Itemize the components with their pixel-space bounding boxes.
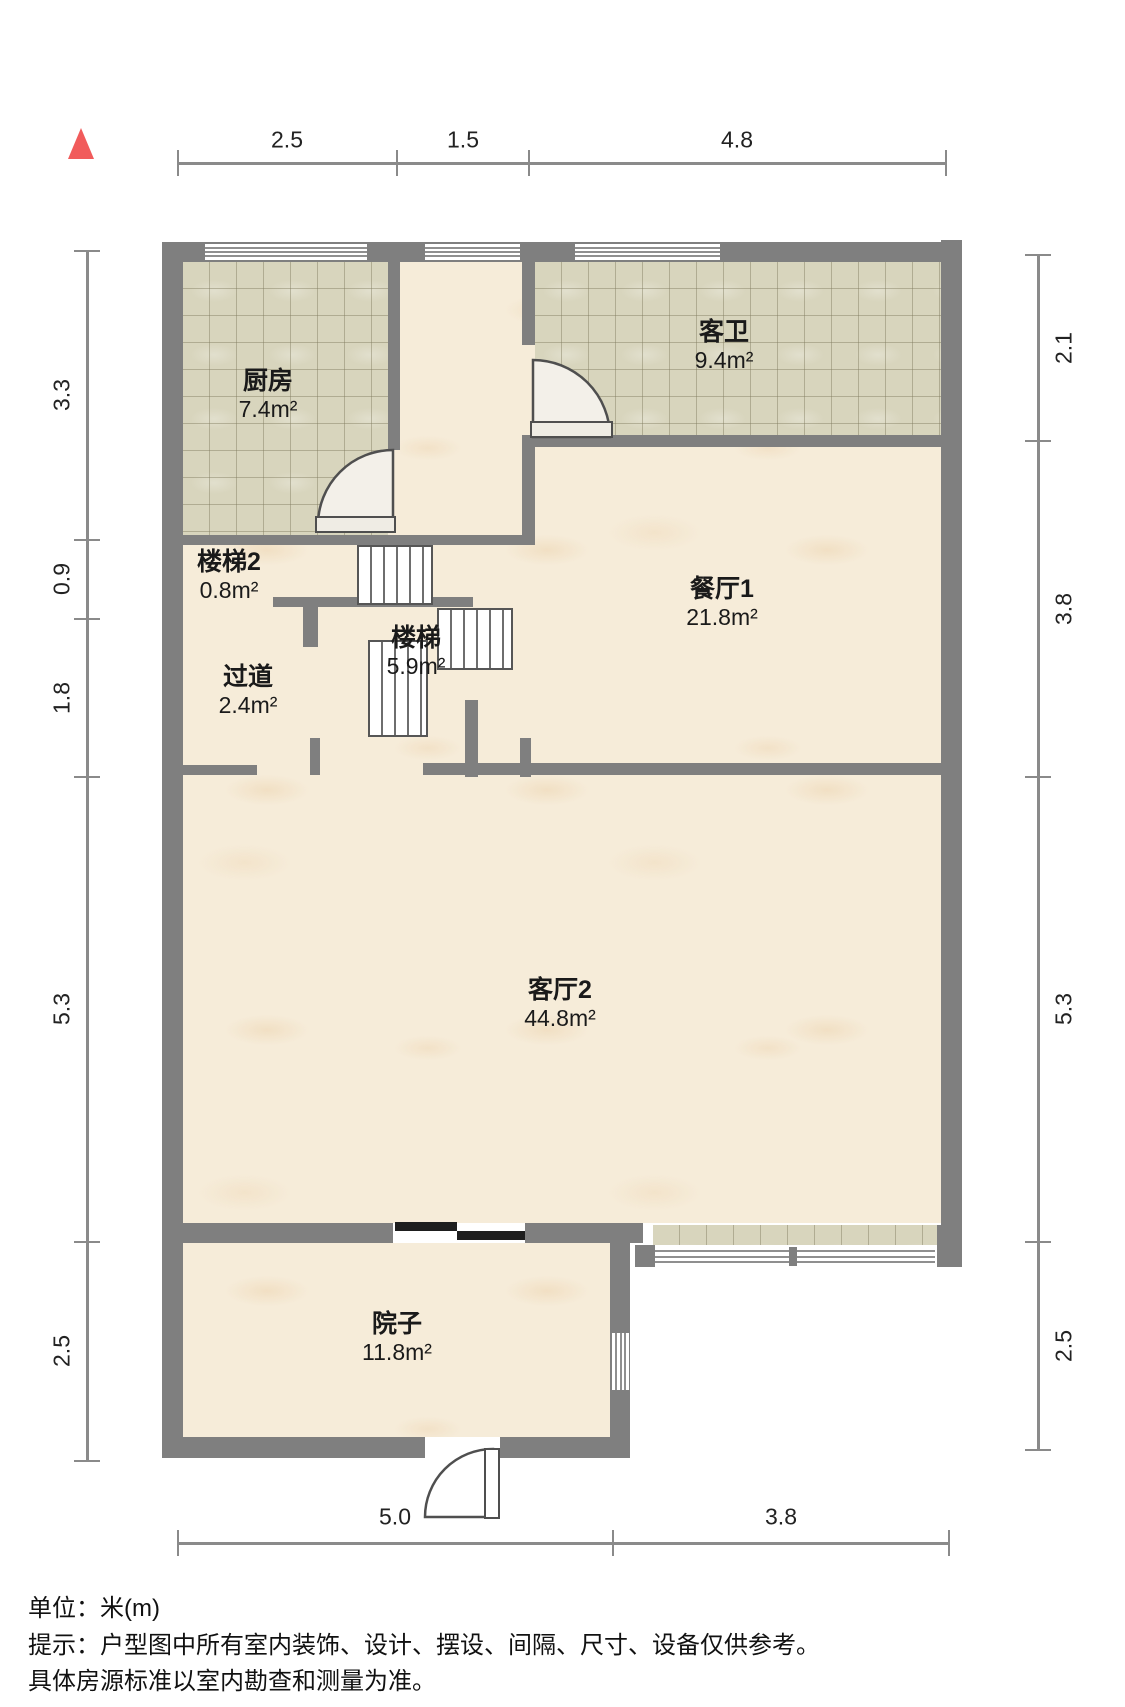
wall-corridor-right-lower xyxy=(522,447,535,545)
wall-window-cap-right xyxy=(937,1225,958,1267)
dim-tick xyxy=(74,1241,100,1243)
dim-right-3: 5.3 xyxy=(1051,993,1078,1025)
dim-top-3: 4.8 xyxy=(721,127,753,154)
stairs-upper-treads xyxy=(357,545,433,605)
window-living-bottom-mullion xyxy=(789,1247,797,1266)
room-label-hallway: 过道2.4m² xyxy=(219,663,278,719)
wall-window-cap-left xyxy=(635,1245,655,1267)
window-kitchen-top xyxy=(205,244,367,260)
footer-notice-line: 提示：户型图中所有室内装饰、设计、摆设、间隔、尺寸、设备仅供参考。 xyxy=(28,1625,820,1660)
footer-unit-line: 单位：米(m) xyxy=(28,1588,160,1623)
dim-tick xyxy=(612,1530,614,1556)
sliding-door-panel-right xyxy=(457,1231,525,1240)
dim-bottom-1: 5.0 xyxy=(379,1504,411,1531)
dim-tick xyxy=(948,1530,950,1556)
wall-stub-stair-b xyxy=(520,738,531,777)
room-label-stair-2: 楼梯20.8m² xyxy=(197,548,261,604)
stairs-right-treads xyxy=(437,608,513,670)
dim-tick xyxy=(528,150,530,176)
dim-tick xyxy=(177,1530,179,1556)
floor-plan: 厨房7.4m² 客卫9.4m² 楼梯20.8m² 餐厅121.8m² 楼梯5.9… xyxy=(0,0,1125,1707)
dim-line-top xyxy=(178,162,946,165)
entrance-door-leaf xyxy=(485,1449,499,1518)
dim-tick xyxy=(1025,440,1051,442)
wall-left xyxy=(162,242,183,1458)
dim-top-2: 1.5 xyxy=(447,127,479,154)
room-label-guest-bath: 客卫9.4m² xyxy=(695,318,754,374)
wall-hallway-bottom xyxy=(183,765,257,775)
dim-left-3: 1.8 xyxy=(49,682,76,714)
footer-disclaimer-line: 具体房源标准以室内勘查和测量为准。 xyxy=(28,1661,436,1696)
dim-tick xyxy=(74,250,100,252)
dim-tick xyxy=(74,539,100,541)
dim-right-1: 2.1 xyxy=(1051,332,1078,364)
window-yard-right xyxy=(612,1333,629,1390)
room-label-living-2: 客厅244.8m² xyxy=(524,976,596,1032)
dim-bottom-2: 3.8 xyxy=(765,1504,797,1531)
dim-tick xyxy=(74,618,100,620)
dim-tick xyxy=(177,150,179,176)
dim-top-1: 2.5 xyxy=(271,127,303,154)
north-compass-icon xyxy=(68,128,94,159)
dim-line-bottom xyxy=(178,1542,949,1545)
room-label-kitchen: 厨房7.4m² xyxy=(239,367,298,423)
floor-sill-tile xyxy=(653,1225,937,1245)
dim-tick xyxy=(396,150,398,176)
wall-corridor-right-upper xyxy=(522,262,535,345)
dim-tick xyxy=(74,776,100,778)
dim-tick xyxy=(945,150,947,176)
dim-line-left xyxy=(86,251,89,1461)
window-corridor-top xyxy=(425,244,520,260)
sliding-door-panel-left xyxy=(395,1222,457,1231)
wall-stub-hall-b xyxy=(310,738,320,775)
dim-tick xyxy=(1025,254,1051,256)
wall-stub-hall-a xyxy=(303,607,318,647)
dim-line-right xyxy=(1037,255,1040,1450)
dim-tick xyxy=(1025,1449,1051,1451)
wall-dining-living-divider xyxy=(423,763,943,775)
dim-tick xyxy=(74,1460,100,1462)
dim-right-4: 2.5 xyxy=(1051,1330,1078,1362)
dim-tick xyxy=(1025,776,1051,778)
dim-left-5: 2.5 xyxy=(49,1335,76,1367)
dim-left-2: 0.9 xyxy=(49,563,76,595)
wall-stub-stair-a xyxy=(465,700,478,777)
entrance-door-gap xyxy=(425,1437,500,1458)
entrance-door-arc xyxy=(425,1449,493,1517)
room-label-yard: 院子11.8m² xyxy=(362,1310,432,1366)
room-label-stair: 楼梯5.9m² xyxy=(387,624,446,680)
wall-right xyxy=(941,240,962,1267)
dim-right-2: 3.8 xyxy=(1051,593,1078,625)
wall-yard-bottom xyxy=(162,1437,630,1458)
wall-kitchen-bottom xyxy=(162,535,535,545)
window-bath-top xyxy=(575,244,720,260)
room-label-dining-1: 餐厅121.8m² xyxy=(686,575,758,631)
dim-tick xyxy=(1025,1241,1051,1243)
wall-bath-bottom xyxy=(522,435,943,447)
wall-kitchen-right xyxy=(388,262,400,450)
dim-left-4: 5.3 xyxy=(49,993,76,1025)
dim-left-1: 3.3 xyxy=(49,379,76,411)
